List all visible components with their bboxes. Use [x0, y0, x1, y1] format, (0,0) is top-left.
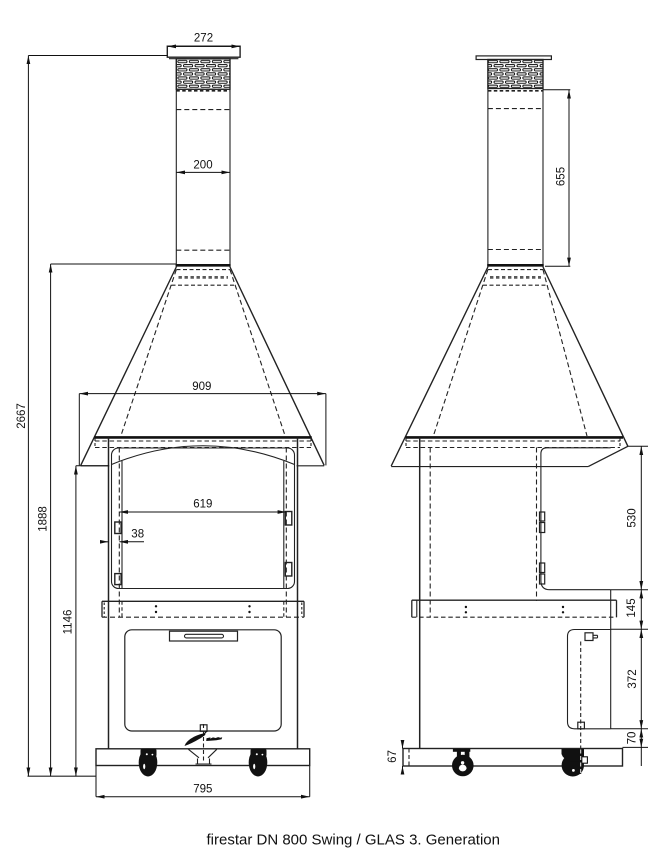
- svg-text:70: 70: [627, 732, 639, 745]
- svg-text:795: 795: [193, 784, 212, 796]
- svg-text:2667: 2667: [16, 403, 28, 429]
- svg-text:372: 372: [627, 669, 639, 688]
- svg-text:38: 38: [131, 529, 144, 541]
- svg-text:655: 655: [556, 167, 568, 186]
- svg-text:145: 145: [626, 598, 638, 617]
- svg-text:1888: 1888: [38, 506, 50, 532]
- svg-text:619: 619: [193, 499, 212, 511]
- svg-text:firestar DN 800 Swing / GLAS 3: firestar DN 800 Swing / GLAS 3. Generati…: [207, 832, 500, 849]
- svg-text:200: 200: [193, 159, 212, 171]
- svg-text:1146: 1146: [63, 610, 75, 635]
- svg-text:272: 272: [194, 32, 213, 44]
- svg-text:530: 530: [627, 508, 639, 527]
- svg-text:909: 909: [192, 381, 211, 393]
- svg-text:67: 67: [387, 750, 399, 763]
